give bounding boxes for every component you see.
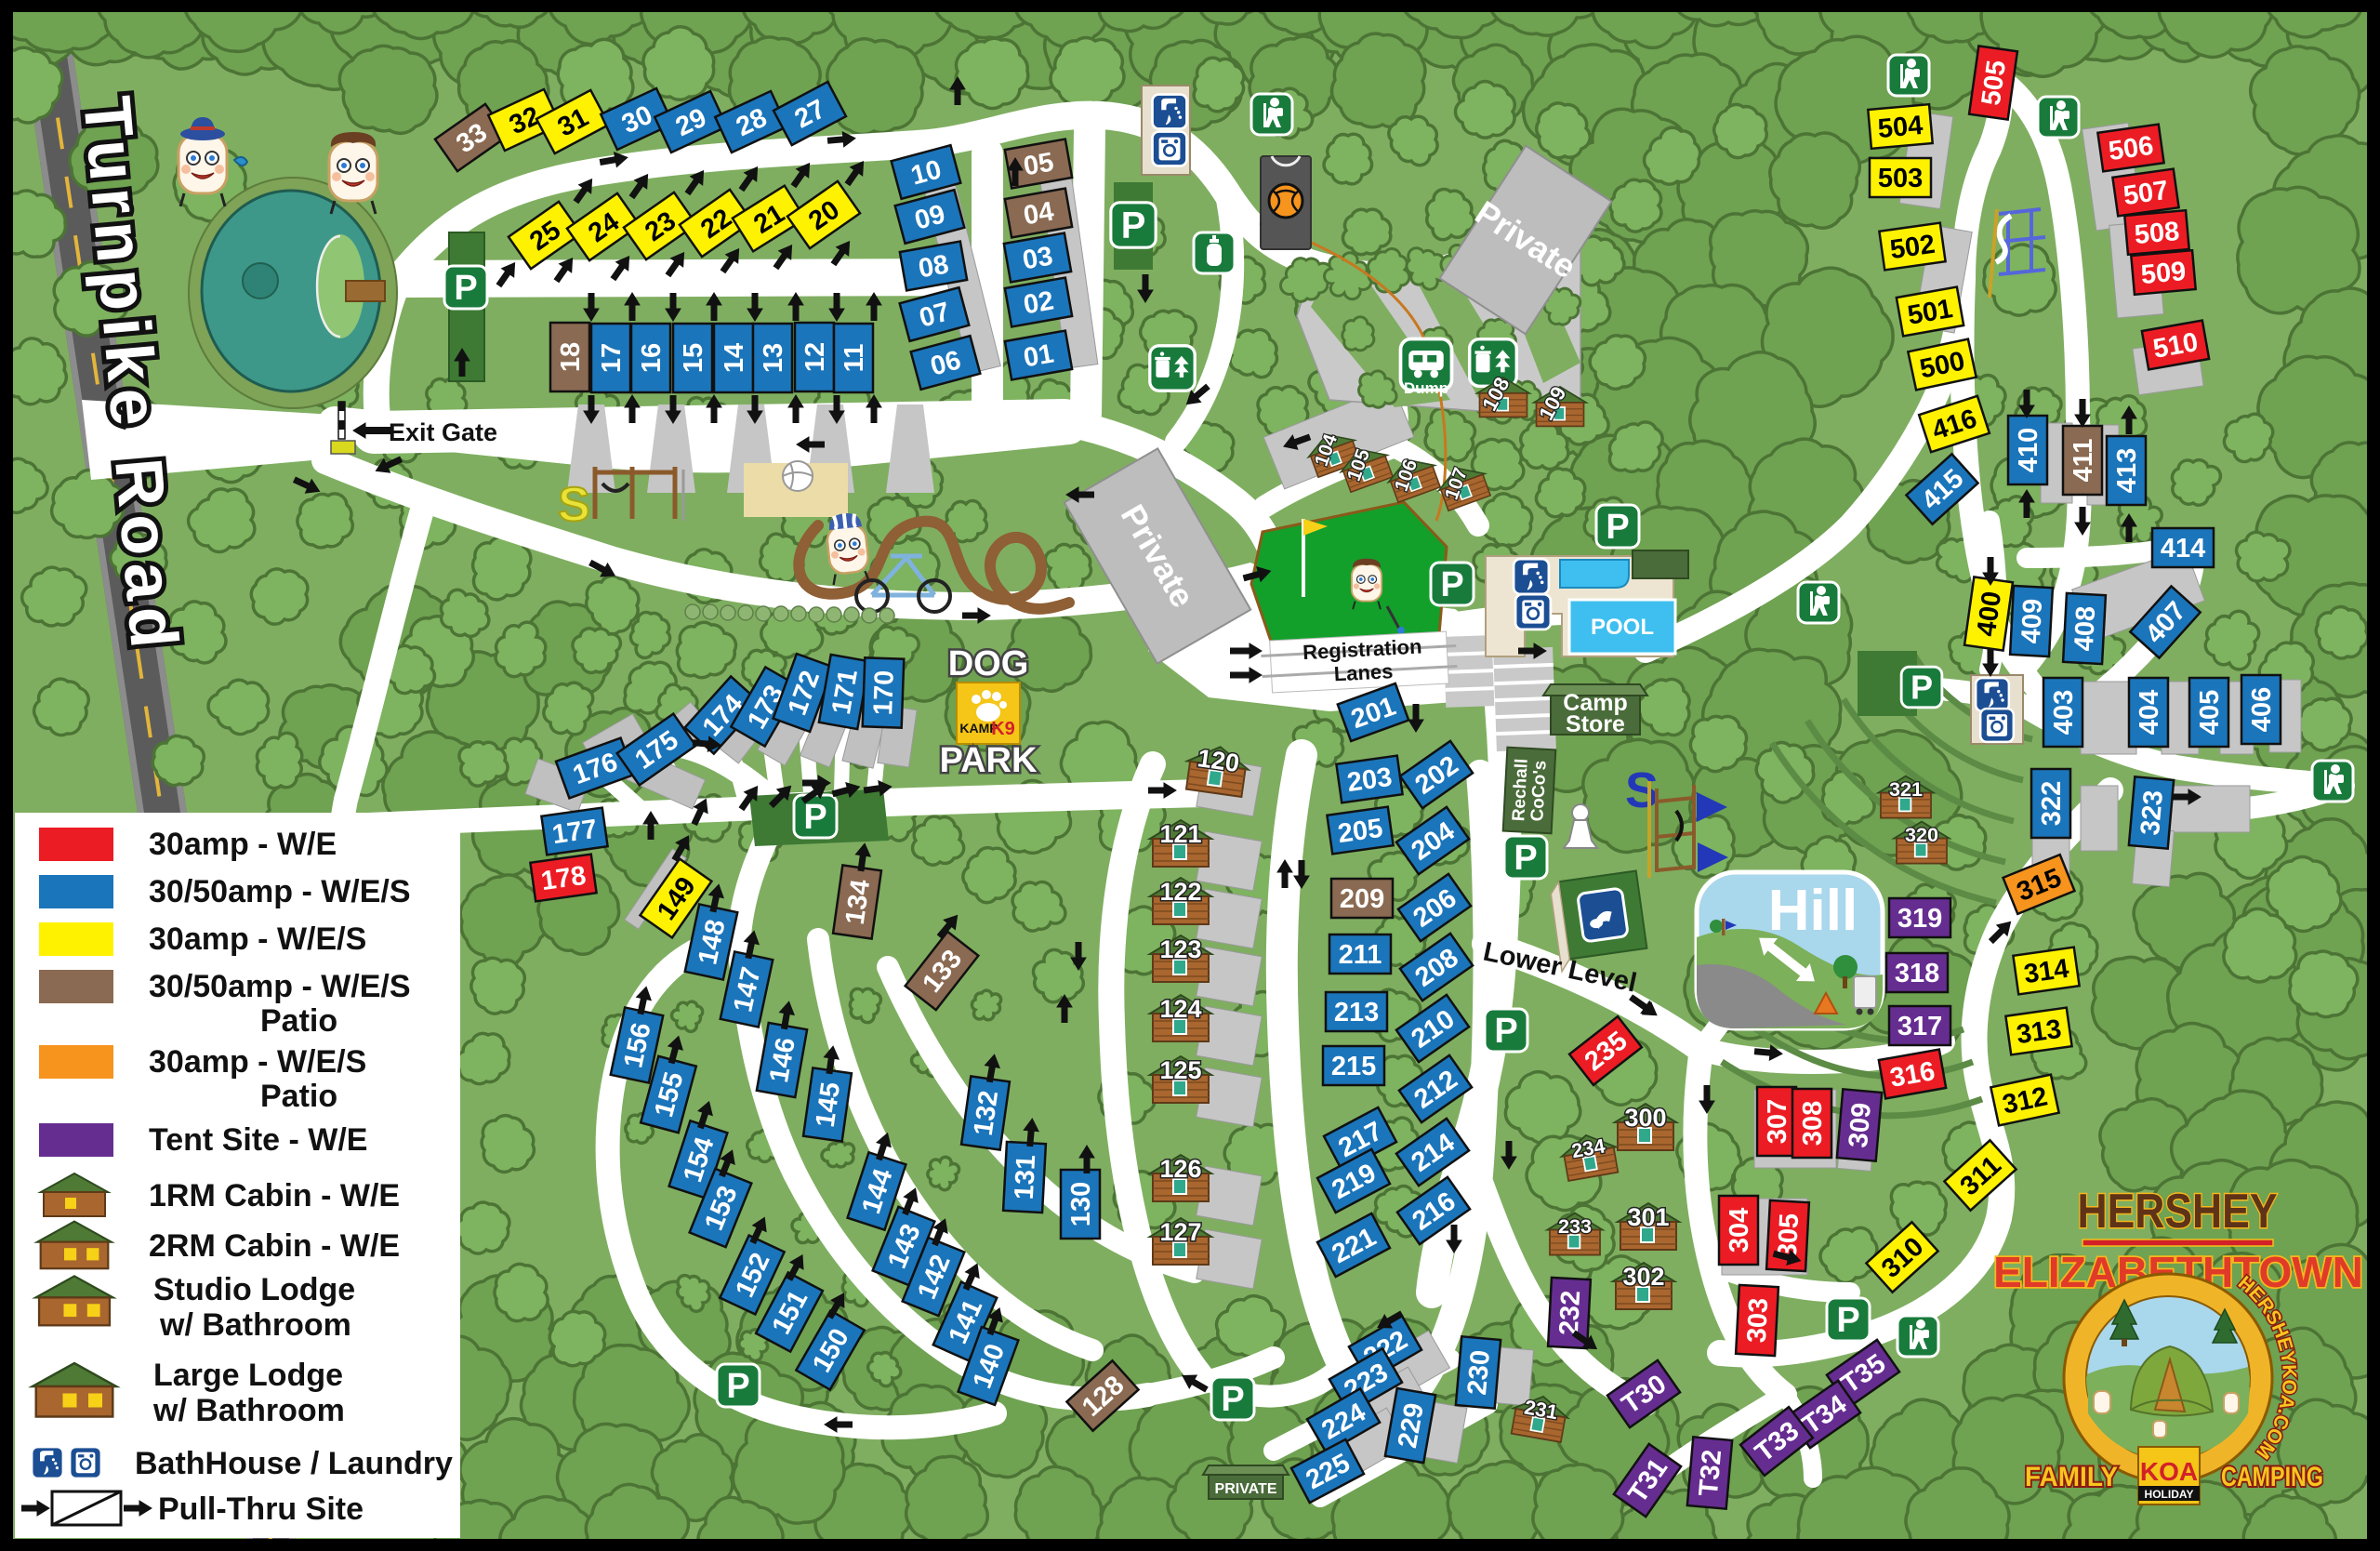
svg-text:403: 403	[2049, 690, 2079, 735]
svg-text:132: 132	[969, 1089, 1004, 1137]
svg-text:121: 121	[1159, 820, 1201, 848]
svg-text:Patio: Patio	[260, 1079, 337, 1114]
svg-text:178: 178	[539, 861, 588, 896]
svg-text:215: 215	[1331, 1052, 1376, 1081]
svg-text:PARK: PARK	[940, 741, 1038, 780]
svg-text:P: P	[1221, 1380, 1244, 1419]
svg-text:12: 12	[800, 342, 830, 372]
svg-text:FAMILY: FAMILY	[2025, 1462, 2118, 1492]
svg-text:126: 126	[1159, 1155, 1201, 1183]
svg-text:410: 410	[2014, 428, 2043, 472]
svg-text:P: P	[1836, 1301, 1859, 1340]
svg-text:414: 414	[2161, 534, 2205, 563]
svg-text:409: 409	[2016, 598, 2048, 644]
svg-text:408: 408	[2069, 605, 2101, 652]
svg-text:Store: Store	[1566, 711, 1625, 737]
svg-text:209: 209	[1340, 884, 1384, 914]
svg-text:Dump: Dump	[1404, 379, 1448, 397]
svg-text:S: S	[558, 478, 590, 532]
svg-text:15: 15	[679, 343, 708, 373]
svg-text:P: P	[1514, 839, 1537, 878]
svg-text:131: 131	[1010, 1154, 1041, 1200]
svg-text:124: 124	[1159, 995, 1201, 1023]
svg-text:Large Lodge: Large Lodge	[153, 1358, 343, 1393]
svg-text:18: 18	[556, 342, 586, 372]
svg-text:01: 01	[1022, 338, 1056, 373]
svg-text:11: 11	[840, 344, 869, 373]
svg-text:314: 314	[2022, 954, 2070, 989]
svg-text:507: 507	[2122, 176, 2170, 211]
svg-text:P: P	[1121, 205, 1146, 246]
svg-text:307: 307	[1763, 1099, 1792, 1144]
svg-text:321: 321	[1889, 777, 1923, 801]
svg-text:14: 14	[720, 343, 749, 373]
svg-text:134: 134	[840, 878, 876, 926]
svg-text:w/ Bathroom: w/ Bathroom	[159, 1307, 351, 1343]
svg-text:213: 213	[1334, 998, 1379, 1027]
svg-text:302: 302	[1622, 1263, 1664, 1291]
svg-text:T32: T32	[1694, 1449, 1727, 1498]
svg-text:309: 309	[1844, 1102, 1877, 1149]
svg-text:301: 301	[1627, 1203, 1669, 1231]
svg-text:HOLIDAY: HOLIDAY	[2145, 1488, 2194, 1501]
svg-text:323: 323	[2135, 789, 2169, 837]
svg-text:230: 230	[1462, 1349, 1496, 1397]
svg-text:303: 303	[1742, 1297, 1774, 1344]
svg-text:177: 177	[550, 815, 599, 850]
svg-text:S: S	[1625, 762, 1659, 818]
svg-text:08: 08	[917, 249, 951, 284]
svg-text:122: 122	[1159, 878, 1201, 906]
svg-text:PRIVATE: PRIVATE	[1215, 1481, 1277, 1497]
svg-text:233: 233	[1558, 1214, 1592, 1238]
svg-text:CAMPING: CAMPING	[2221, 1462, 2323, 1492]
svg-text:Exit Gate: Exit Gate	[389, 418, 497, 446]
svg-text:P: P	[1606, 508, 1629, 547]
svg-text:504: 504	[1877, 111, 1924, 144]
svg-text:30/50amp - W/E/S: 30/50amp - W/E/S	[149, 969, 411, 1004]
svg-text:308: 308	[1798, 1101, 1828, 1146]
svg-text:Studio Lodge: Studio Lodge	[153, 1272, 355, 1307]
svg-text:318: 318	[1895, 959, 1939, 988]
svg-text:232: 232	[1554, 1290, 1586, 1336]
svg-text:404: 404	[2135, 690, 2164, 735]
svg-text:2RM Cabin - W/E: 2RM Cabin - W/E	[149, 1228, 400, 1264]
svg-text:16: 16	[637, 343, 667, 373]
svg-text:313: 313	[2015, 1014, 2063, 1050]
svg-text:30amp - W/E/S: 30amp - W/E/S	[149, 921, 366, 957]
svg-text:w/ Bathroom: w/ Bathroom	[152, 1393, 345, 1428]
svg-text:304: 304	[1725, 1208, 1754, 1253]
svg-text:405: 405	[2195, 690, 2225, 735]
svg-text:30/50amp - W/E/S: 30/50amp - W/E/S	[149, 874, 411, 909]
svg-text:503: 503	[1878, 164, 1923, 193]
svg-text:509: 509	[2140, 257, 2188, 290]
svg-text:30amp - W/E/S: 30amp - W/E/S	[149, 1044, 366, 1080]
svg-text:411: 411	[2069, 439, 2098, 483]
svg-text:Hill: Hill	[1768, 879, 1858, 943]
svg-text:04: 04	[1022, 196, 1056, 231]
svg-text:KOA: KOA	[2140, 1457, 2198, 1486]
svg-text:127: 127	[1159, 1218, 1201, 1246]
svg-text:30amp - W/E: 30amp - W/E	[149, 827, 337, 862]
svg-text:Patio: Patio	[260, 1003, 337, 1039]
svg-text:203: 203	[1345, 762, 1394, 798]
svg-text:413: 413	[2112, 448, 2142, 493]
svg-text:03: 03	[1021, 241, 1055, 275]
svg-text:Pull-Thru Site: Pull-Thru Site	[158, 1491, 364, 1527]
svg-text:P: P	[454, 269, 477, 308]
svg-text:13: 13	[759, 343, 788, 373]
svg-text:130: 130	[1066, 1182, 1096, 1226]
svg-text:P: P	[803, 798, 826, 837]
svg-text:P: P	[1911, 668, 1933, 706]
svg-text:123: 123	[1159, 935, 1201, 963]
svg-text:05: 05	[1022, 147, 1056, 181]
svg-text:CoCo's: CoCo's	[1527, 760, 1550, 822]
svg-text:DOG: DOG	[948, 644, 1029, 683]
svg-text:505: 505	[1977, 59, 2012, 107]
svg-text:17: 17	[597, 343, 627, 373]
svg-text:145: 145	[811, 1080, 846, 1129]
svg-text:P: P	[1440, 565, 1463, 604]
svg-text:322: 322	[2037, 781, 2067, 826]
svg-text:400: 400	[1972, 590, 2007, 638]
svg-text:BathHouse / Laundry: BathHouse / Laundry	[135, 1446, 453, 1481]
svg-text:502: 502	[1888, 230, 1937, 265]
svg-text:319: 319	[1897, 904, 1942, 934]
svg-text:506: 506	[2107, 131, 2155, 166]
svg-text:K9: K9	[991, 719, 1015, 739]
svg-text:205: 205	[1336, 814, 1384, 849]
svg-text:317: 317	[1897, 1012, 1942, 1041]
svg-text:Tent Site - W/E: Tent Site - W/E	[149, 1122, 367, 1158]
svg-text:P: P	[1494, 1012, 1517, 1051]
svg-text:POOL: POOL	[1591, 615, 1654, 640]
svg-text:125: 125	[1159, 1056, 1201, 1084]
svg-text:406: 406	[2247, 687, 2277, 732]
svg-text:P: P	[726, 1367, 749, 1406]
svg-text:320: 320	[1905, 823, 1938, 846]
svg-text:HERSHEY: HERSHEY	[2078, 1185, 2278, 1239]
svg-text:211: 211	[1339, 940, 1382, 970]
svg-text:02: 02	[1022, 285, 1056, 320]
svg-text:120: 120	[1196, 744, 1241, 777]
svg-text:300: 300	[1624, 1104, 1666, 1132]
svg-text:1RM Cabin - W/E: 1RM Cabin - W/E	[149, 1178, 400, 1213]
svg-text:508: 508	[2134, 217, 2181, 250]
svg-text:170: 170	[868, 669, 900, 715]
svg-text:Lanes: Lanes	[1333, 659, 1394, 685]
